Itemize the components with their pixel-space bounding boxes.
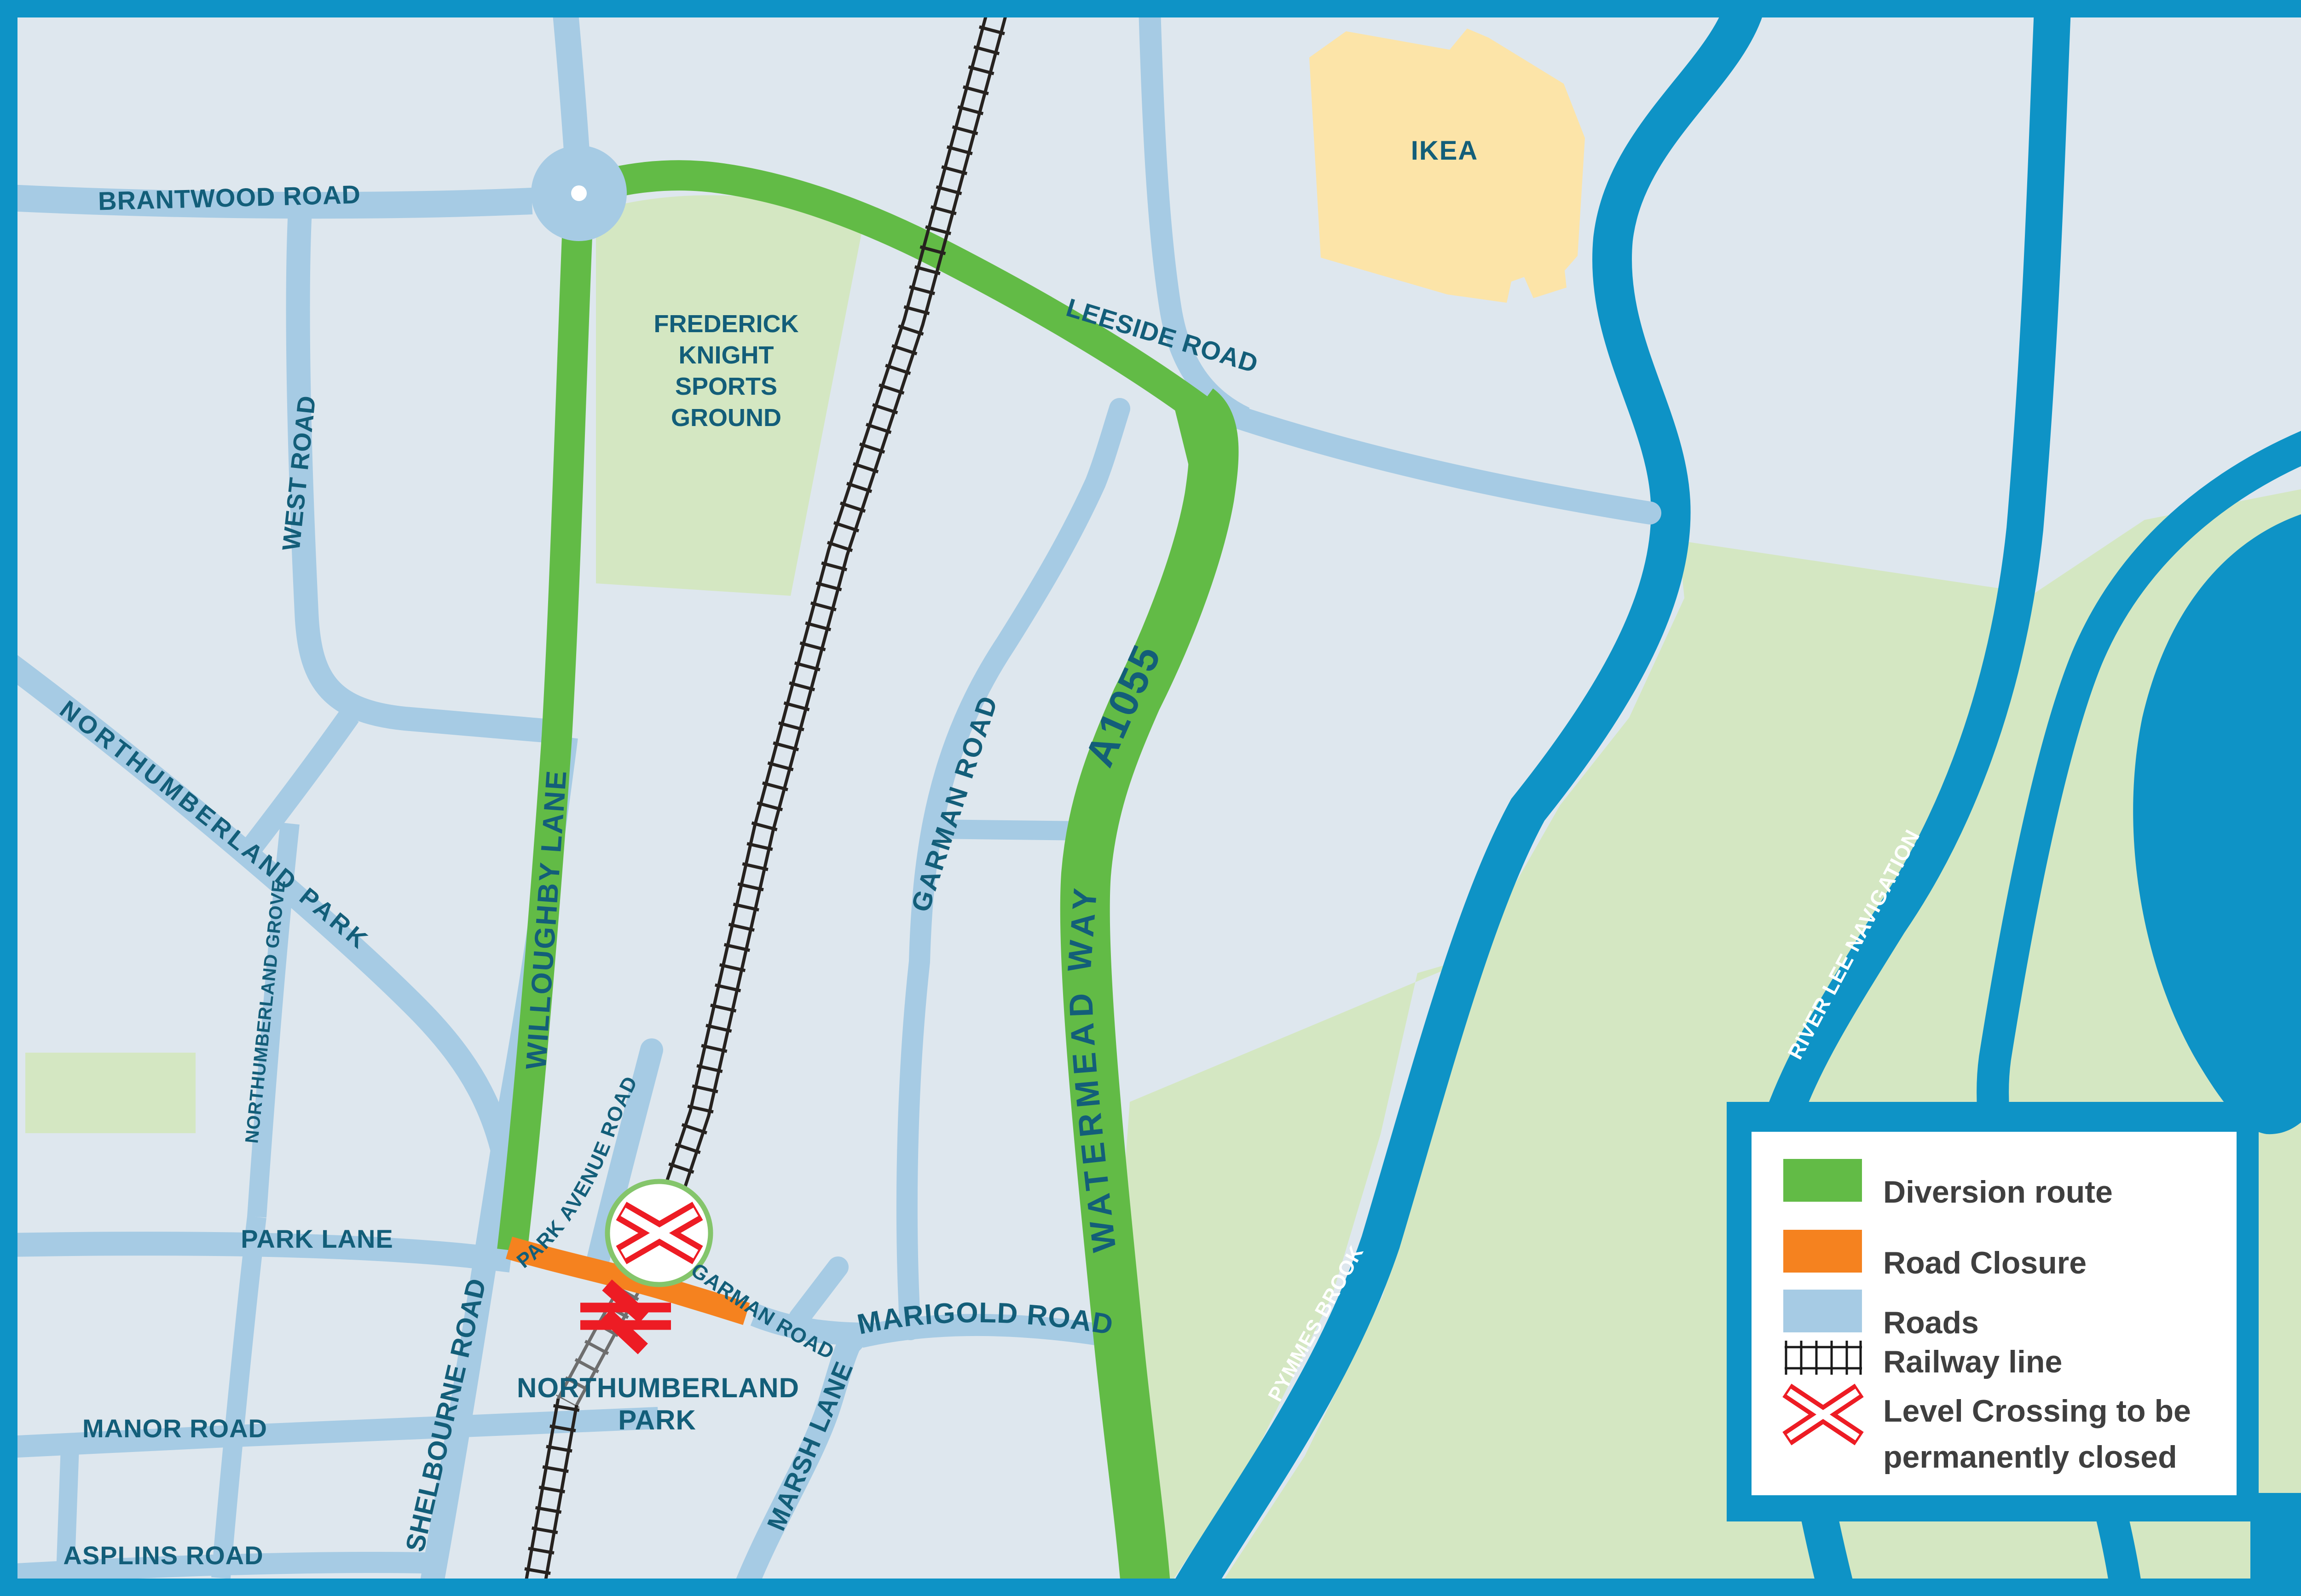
svg-text:MANOR ROAD: MANOR ROAD bbox=[82, 1414, 267, 1443]
svg-text:Diversion route: Diversion route bbox=[1883, 1175, 2113, 1210]
svg-text:Railway line: Railway line bbox=[1883, 1344, 2062, 1379]
svg-text:SPORTS: SPORTS bbox=[675, 373, 777, 400]
svg-text:ASPLINS ROAD: ASPLINS ROAD bbox=[63, 1541, 263, 1570]
svg-text:PARK: PARK bbox=[618, 1405, 696, 1435]
svg-text:NORTHUMBERLAND: NORTHUMBERLAND bbox=[517, 1372, 799, 1403]
svg-text:Roads: Roads bbox=[1883, 1305, 1979, 1340]
svg-text:Road Closure: Road Closure bbox=[1883, 1245, 2087, 1280]
svg-text:Level Crossing to be: Level Crossing to be bbox=[1883, 1394, 2191, 1429]
svg-text:KNIGHT: KNIGHT bbox=[679, 341, 774, 369]
svg-text:GROUND: GROUND bbox=[671, 404, 781, 432]
svg-text:IKEA: IKEA bbox=[1411, 136, 1479, 166]
svg-text:FREDERICK: FREDERICK bbox=[653, 310, 798, 338]
svg-text:permanently closed: permanently closed bbox=[1883, 1440, 2177, 1475]
svg-text:PARK LANE: PARK LANE bbox=[241, 1224, 393, 1253]
